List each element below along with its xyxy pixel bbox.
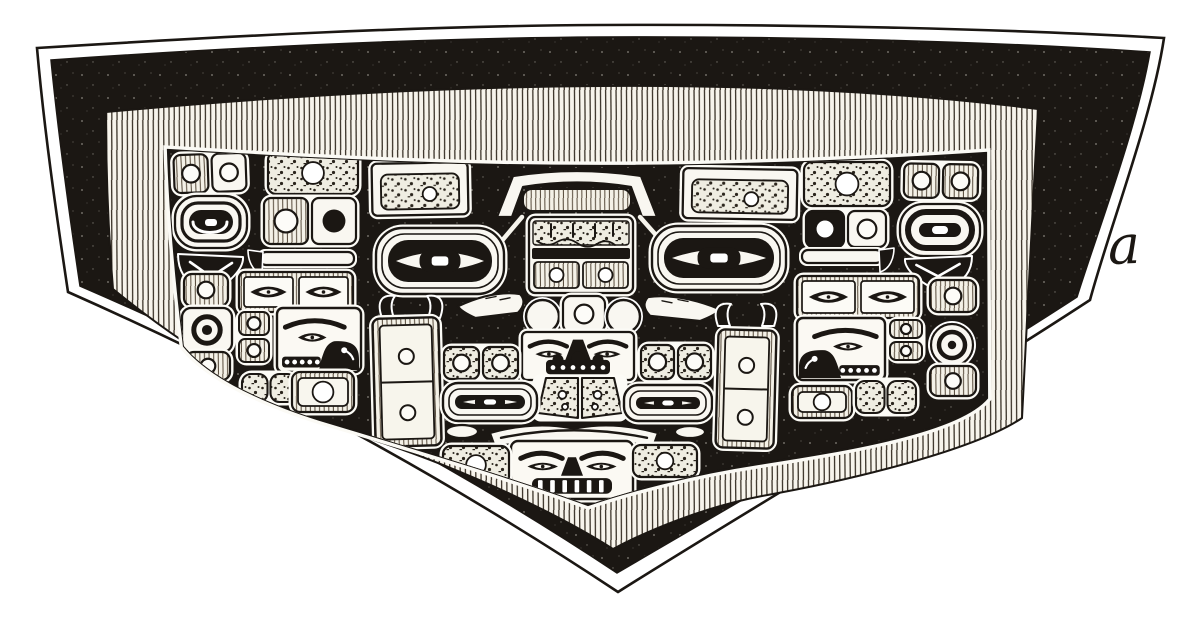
engraving-figure: a (0, 0, 1200, 619)
left-ellipse (446, 425, 478, 438)
left-rosette-pair (441, 344, 522, 383)
chilkat-blanket-engraving (0, 0, 1200, 619)
top-right-box-pair (900, 160, 982, 202)
center-trapezoid-pair (533, 375, 628, 422)
right-lobe-panel (853, 378, 920, 417)
bottom-right-flank-box (630, 442, 701, 481)
left-mid-eye (440, 380, 541, 425)
left-cheek-stack (236, 309, 273, 366)
right-ellipse (675, 426, 705, 438)
right-door-panel (712, 326, 780, 453)
top-left-box-pair (170, 149, 251, 197)
right-big-eye (649, 223, 790, 294)
right-donut-ovoid (897, 201, 984, 260)
right-column-box-1 (927, 277, 980, 316)
center-fingers-box (526, 214, 637, 297)
left-big-eye (373, 225, 508, 298)
right-box-under-face (789, 383, 856, 422)
figure-label: a (1107, 217, 1169, 279)
left-ring-target (179, 305, 236, 356)
left-door-panel (369, 314, 446, 451)
right-column-box-2 (927, 363, 980, 400)
right-eyes-box (794, 273, 923, 322)
left-column-box-1 (181, 271, 232, 310)
right-duo-pill (803, 208, 890, 251)
left-spiral-ovoid (172, 193, 251, 252)
top-right-mottled-bar (801, 159, 894, 210)
left-profile-face (274, 305, 365, 376)
right-rosette-pair (638, 342, 715, 383)
top-left-framed-panel (368, 159, 472, 220)
right-cheek-stack (887, 317, 926, 364)
right-mid-eye (621, 382, 716, 425)
top-right-framed-panel (679, 164, 801, 223)
left-box-duo (261, 195, 360, 248)
right-profile-face (794, 315, 889, 384)
left-framed-box (289, 369, 358, 416)
right-ring-donut (928, 321, 976, 369)
